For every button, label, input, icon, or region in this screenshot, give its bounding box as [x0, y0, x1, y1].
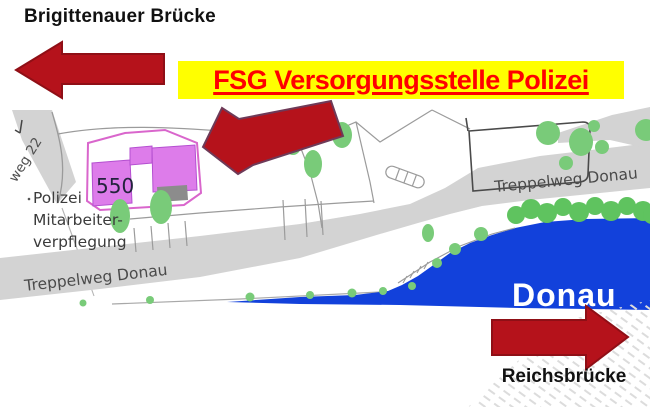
arrow-left-brigittenauer — [16, 42, 164, 98]
facility-label-line2: Mitarbeiter- — [33, 211, 123, 229]
river-label: Donau — [512, 277, 617, 313]
building-connector — [130, 146, 152, 165]
label-brigittenauer-bruecke: Brigittenauer Brücke — [24, 6, 216, 28]
highlight-banner: FSG Versorgungsstelle Polizei — [178, 61, 624, 99]
facility-label-line1: Polizei — [33, 189, 82, 207]
building-east — [152, 145, 197, 192]
arrow-diagonal-to-building — [203, 101, 343, 174]
parcel-550 — [87, 130, 201, 210]
banner-title: FSG Versorgungsstelle Polizei — [213, 65, 589, 96]
label-reichsbruecke: Reichsbrücke — [494, 366, 634, 388]
building-number-label: 550 — [96, 174, 134, 198]
facility-label-line3: verpflegung — [33, 233, 127, 251]
map-annotation-page: weg 22 550 Polizei Mitarbeiter- verpfleg… — [0, 0, 650, 407]
stairs-symbol — [384, 165, 426, 190]
